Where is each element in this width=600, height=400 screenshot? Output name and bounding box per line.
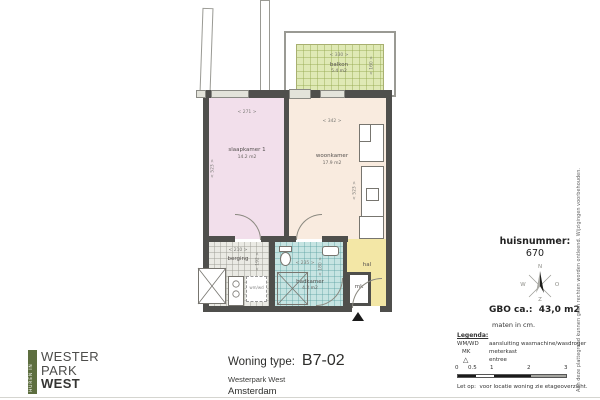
wall-berging-badkamer: [269, 242, 275, 312]
disclaimer-text: Aan deze plattegrond kunnen geen rechten…: [576, 174, 582, 392]
scale-tick-1: 1: [490, 365, 494, 371]
gbo-text: GBO ca.: 43,0 m2: [489, 305, 580, 315]
balkon-label: balkon: [314, 62, 364, 68]
legend-val-wmwd: aansluiting wasmachine/wasdroger: [489, 341, 586, 347]
washer-unit: [228, 276, 244, 306]
slaapkamer-label: slaapkamer 1: [217, 147, 277, 153]
logo: HUREN IN WESTER PARK WEST: [28, 350, 99, 394]
badkamer-height-dim: < 180 >: [319, 252, 324, 282]
compass-w: W: [519, 282, 527, 288]
scale-seg-2: [476, 375, 494, 377]
entree-triangle: [352, 312, 364, 321]
huisnummer-value: 670: [480, 249, 590, 260]
scale-seg-4: [531, 375, 566, 377]
woonkamer-width-dim: < 342 >: [307, 119, 357, 124]
washbasin: [322, 246, 339, 256]
badkamer-area: 4.2 m2: [285, 286, 335, 291]
project-name: Westerpark West: [228, 375, 345, 384]
window-woonkamer-left: [289, 89, 311, 99]
legend-key-entree entree-triangle-icon: △: [463, 356, 468, 364]
wall-slaap-woon: [284, 97, 289, 242]
compass-rose: [529, 271, 551, 297]
slaapkamer-width-dim: < 271 >: [222, 110, 272, 115]
logo-line2: PARK: [41, 364, 99, 378]
compass-n: N: [536, 264, 544, 270]
wall-stub-mid: [260, 0, 270, 92]
balkon-width-dim: < 330 >: [314, 53, 364, 58]
shaft-x-box: [198, 268, 226, 304]
compass-o: O: [553, 282, 561, 288]
kitchen-low-unit: [359, 216, 384, 239]
slaapkamer-area: 14.2 m2: [217, 155, 277, 160]
woning-type-label: Woning type:: [228, 356, 295, 368]
wall-stub-left: [200, 8, 214, 94]
slaapkamer-height-dim: < 523 >: [211, 154, 216, 184]
floorplan-sheet: < 330 > balkon 5.4 m2 < 160 > wm/wd mk: [0, 0, 600, 400]
logo-strip: HUREN IN: [28, 350, 37, 394]
project-city: Amsterdam: [228, 386, 345, 397]
legend-title: Legenda:: [457, 332, 488, 339]
legend-key-wmwd: WM/WD: [457, 341, 479, 347]
scale-seg-3: [494, 375, 531, 377]
huisnummer-label: huisnummer:: [480, 237, 590, 248]
window-corner-left: [196, 90, 206, 98]
scale-seg-1: [458, 375, 476, 377]
wall-right: [386, 90, 392, 312]
wmwd-label: wm/wd: [246, 286, 267, 291]
balkon-area: 5.4 m2: [314, 69, 364, 74]
hal-label: hal: [356, 262, 378, 268]
woonkamer-label: woonkamer: [302, 153, 362, 159]
logo-line1: WESTER: [41, 350, 99, 364]
legend-val-entree: entree: [489, 357, 507, 363]
scale-tick-0: 0: [455, 365, 459, 371]
legend-key-mk: MK: [462, 349, 470, 355]
woning-type-code: B7-02: [302, 352, 345, 370]
title-block: Woning type: B7-02 Westerpark West Amste…: [228, 352, 345, 397]
logo-strip-text: HUREN IN: [29, 363, 34, 392]
kitchen-hob: [366, 188, 379, 201]
kitchen-tall-unit-split: [359, 124, 371, 142]
maten-text: maten in cm.: [492, 321, 535, 329]
scale-tick-3: 3: [564, 365, 568, 371]
legend-val-mk: meterkast: [489, 349, 517, 355]
window-woonkamer-door: [320, 90, 345, 98]
woonkamer-area: 17.9 m2: [302, 161, 362, 166]
woonkamer-height-dim: < 523 >: [353, 176, 358, 206]
scale-tick-2: 2: [527, 365, 531, 371]
berging-height-dim: < 192 >: [256, 247, 261, 277]
badkamer-label: badkamer: [285, 279, 335, 285]
scale-tick-05: 0.5: [468, 365, 477, 371]
wall-mid-h-2: [261, 236, 296, 242]
window-slaapkamer-left: [211, 90, 249, 98]
wall-mid-h-1: [209, 236, 235, 242]
compass-z: Z: [536, 297, 544, 303]
sheet-bottom-edge: [0, 397, 600, 398]
wall-bottom-left: [203, 306, 352, 312]
legend-note: Let op: voor locatie woning zie etageove…: [457, 384, 588, 390]
logo-line3: WEST: [41, 377, 99, 391]
balkon-height-dim: < 160 >: [370, 51, 375, 81]
scale-bar: [457, 374, 567, 378]
